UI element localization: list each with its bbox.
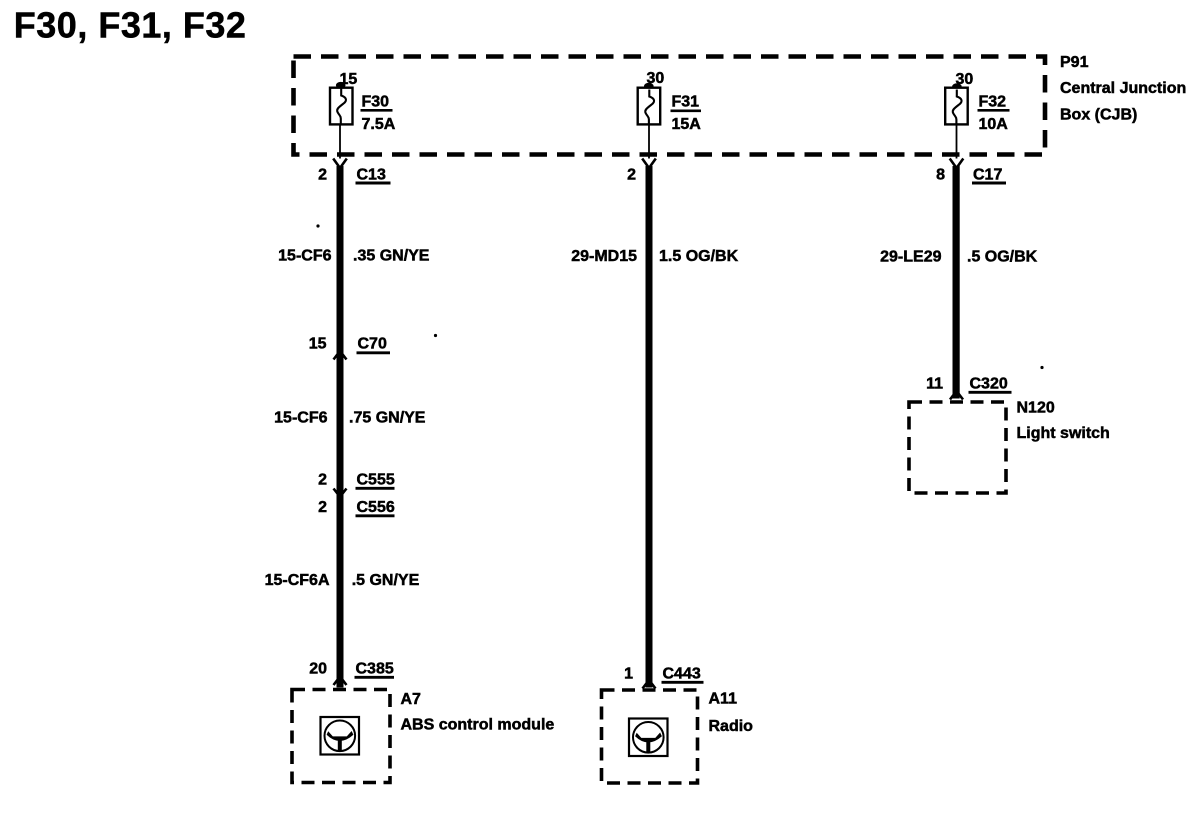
svg-text:15-CF6A: 15-CF6A [265, 572, 330, 589]
svg-text:2: 2 [627, 167, 636, 184]
svg-text:7.5A: 7.5A [362, 116, 396, 133]
svg-text:15A: 15A [672, 116, 702, 133]
svg-text:30: 30 [956, 71, 974, 88]
svg-text:C13: C13 [357, 167, 386, 184]
svg-text:C17: C17 [973, 167, 1002, 184]
svg-text:15-CF6: 15-CF6 [278, 248, 331, 265]
svg-text:2: 2 [318, 167, 327, 184]
svg-text:29-MD15: 29-MD15 [571, 248, 637, 265]
svg-text:N120: N120 [1017, 400, 1055, 417]
svg-text:C555: C555 [357, 472, 395, 489]
svg-text:F30, F31, F32: F30, F31, F32 [14, 5, 247, 46]
svg-text:20: 20 [309, 661, 327, 678]
svg-text:A11: A11 [709, 691, 738, 708]
svg-text:2: 2 [318, 499, 327, 516]
svg-text:ABS control module: ABS control module [401, 717, 555, 734]
svg-text:11: 11 [926, 376, 943, 393]
svg-text:1.5 OG/BK: 1.5 OG/BK [659, 248, 739, 265]
svg-text:C70: C70 [358, 336, 387, 353]
svg-text:Box (CJB): Box (CJB) [1060, 107, 1137, 124]
svg-text:F30: F30 [362, 94, 390, 111]
svg-text:Central Junction: Central Junction [1060, 80, 1186, 97]
svg-text:.5 GN/YE: .5 GN/YE [352, 572, 420, 589]
svg-text:15-CF6: 15-CF6 [274, 410, 327, 427]
svg-text:15: 15 [340, 71, 358, 88]
svg-text:8: 8 [936, 167, 945, 184]
svg-text:.5 OG/BK: .5 OG/BK [967, 249, 1038, 266]
svg-text:A7: A7 [401, 691, 422, 708]
svg-text:15: 15 [309, 336, 327, 353]
svg-text:1: 1 [624, 666, 633, 683]
svg-text:F31: F31 [672, 94, 700, 111]
svg-text:P91: P91 [1060, 54, 1089, 71]
svg-text:29-LE29: 29-LE29 [880, 249, 941, 266]
svg-text:10A: 10A [979, 116, 1009, 133]
svg-text:.35 GN/YE: .35 GN/YE [353, 248, 430, 265]
svg-text:C556: C556 [357, 499, 395, 516]
svg-text:C385: C385 [356, 661, 394, 678]
svg-text:2: 2 [318, 472, 327, 489]
svg-text:.75 GN/YE: .75 GN/YE [349, 410, 426, 427]
svg-text:Light switch: Light switch [1017, 425, 1110, 442]
svg-text:Radio: Radio [709, 718, 754, 735]
svg-text:30: 30 [647, 70, 665, 87]
svg-text:C443: C443 [663, 666, 701, 683]
svg-text:C320: C320 [970, 376, 1008, 393]
svg-text:F32: F32 [979, 94, 1007, 111]
